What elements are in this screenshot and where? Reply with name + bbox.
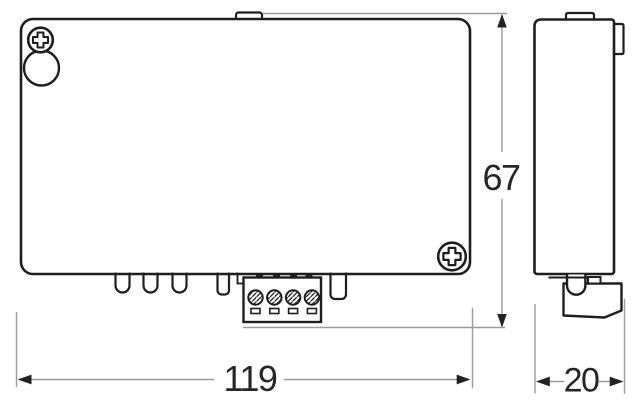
arrow-down-icon bbox=[497, 314, 507, 328]
terminal-slot-mark bbox=[306, 274, 313, 278]
slotted-terminal-screw-icon bbox=[286, 290, 300, 304]
terminal-wire-port bbox=[251, 309, 260, 314]
slotted-terminal-screw-icon bbox=[305, 290, 319, 304]
slotted-terminal-screw-icon bbox=[267, 290, 281, 304]
arrow-up-icon bbox=[497, 14, 507, 28]
bottom-socket bbox=[116, 273, 130, 293]
terminal-wire-port bbox=[289, 309, 298, 314]
bottom-socket bbox=[144, 273, 158, 293]
terminal-slot-mark bbox=[256, 274, 263, 278]
terminal-slot-mark bbox=[290, 274, 297, 278]
slotted-terminal-screw-icon bbox=[248, 290, 262, 304]
bottom-tab-right bbox=[331, 273, 347, 300]
terminal-wire-port bbox=[307, 309, 316, 314]
arrow-right-icon bbox=[610, 377, 624, 387]
side-view bbox=[535, 13, 624, 318]
technical-drawing: 67 119 20 bbox=[0, 0, 637, 400]
terminal-block bbox=[238, 273, 322, 323]
bottom-tab-small bbox=[218, 273, 230, 295]
width-dimension-label: 119 bbox=[224, 358, 277, 399]
side-connector-latch bbox=[588, 277, 601, 284]
terminal-wire-port bbox=[270, 309, 279, 314]
keyhole-slot bbox=[24, 51, 59, 86]
arrow-right-icon bbox=[457, 375, 471, 385]
arrow-left-icon bbox=[18, 375, 32, 385]
drawing-canvas: 67 119 20 bbox=[0, 0, 637, 400]
front-view bbox=[21, 13, 470, 323]
side-enclosure-body bbox=[535, 20, 615, 275]
depth-dimension-label: 20 bbox=[564, 362, 599, 400]
arrow-left-icon bbox=[536, 377, 550, 387]
front-enclosure-body bbox=[21, 19, 470, 274]
terminal-slot-mark bbox=[273, 274, 280, 278]
bottom-socket bbox=[173, 273, 187, 293]
height-dimension-label: 67 bbox=[482, 157, 520, 198]
